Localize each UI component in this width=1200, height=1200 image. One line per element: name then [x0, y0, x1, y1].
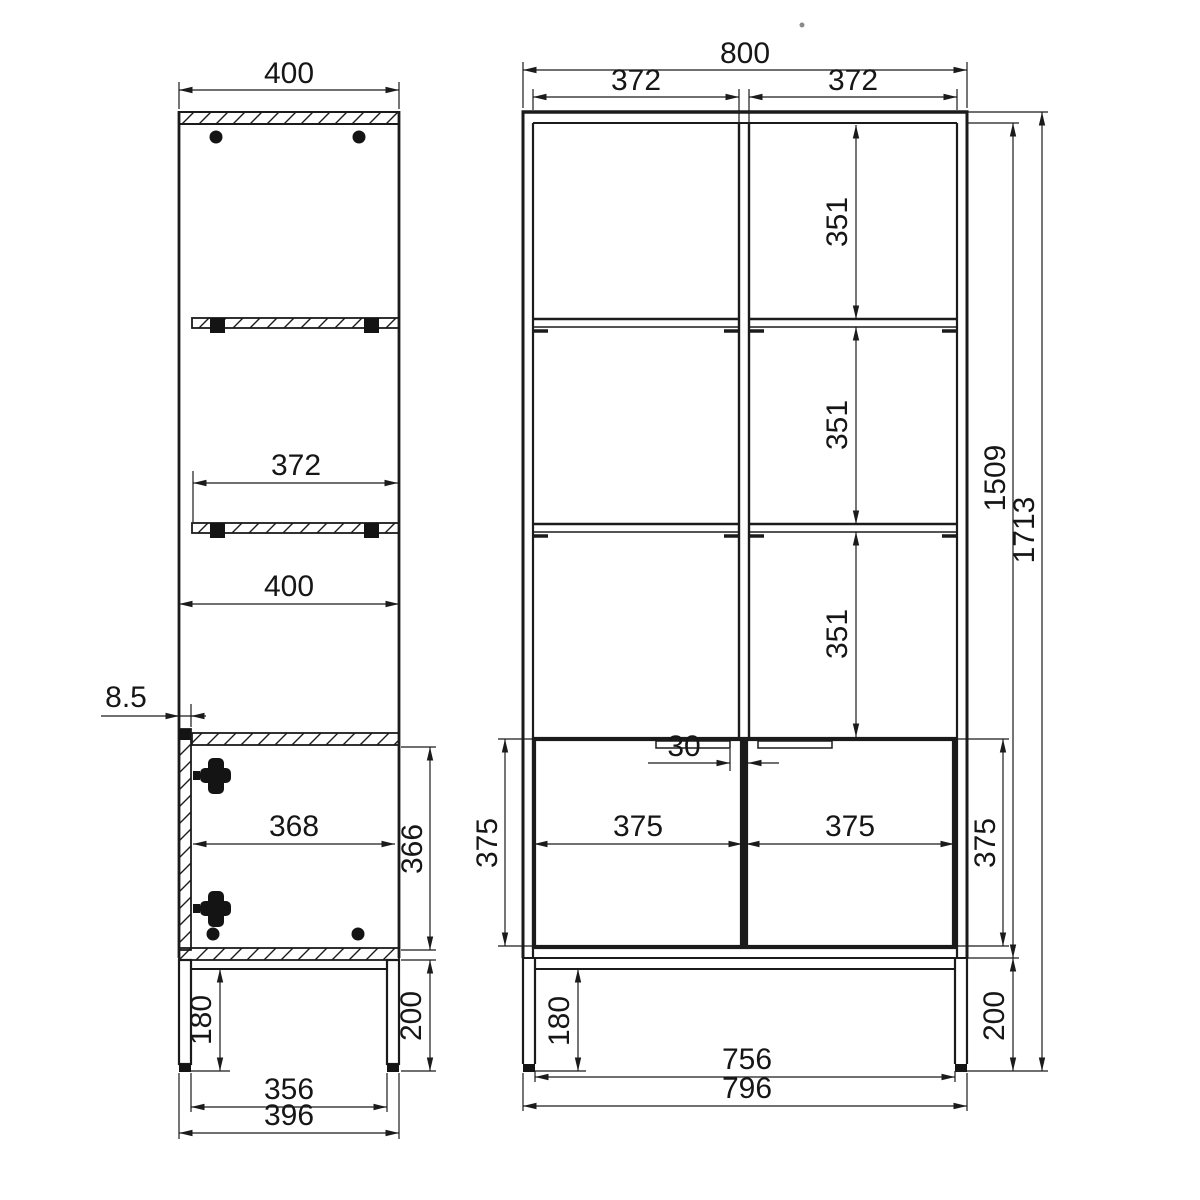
- dim-front-underframe-clearance: 180: [543, 996, 576, 1046]
- dim-bay-height-top: 351: [821, 197, 854, 247]
- dowel-hole-icon: [207, 928, 220, 941]
- shelf-clip-icon: [210, 523, 225, 538]
- door-top-edge: [179, 729, 191, 740]
- dim-right-door-width: 375: [825, 810, 875, 843]
- hinge-icon: [193, 891, 231, 927]
- dim-side-leg-height: 200: [395, 991, 428, 1041]
- side-bottom-section-top-panel: [192, 733, 399, 745]
- dim-total-width: 800: [720, 37, 770, 70]
- leg-foot: [523, 1064, 535, 1072]
- dim-side-leg-span-outer: 396: [264, 1099, 314, 1132]
- dim-right-door-height: 375: [969, 818, 1002, 868]
- front-carcass: [522, 111, 969, 1072]
- side-door-section: [179, 729, 191, 950]
- side-top-panel: [179, 112, 399, 124]
- dim-side-underframe-clearance: 180: [185, 995, 218, 1045]
- dim-left-door-width: 375: [613, 810, 663, 843]
- hinge-icon: [193, 758, 231, 794]
- center-divider: [739, 123, 749, 739]
- right-door: [746, 739, 954, 947]
- leg-foot: [387, 1064, 399, 1072]
- front-shelf: [749, 319, 957, 331]
- dim-side-interior-depth: 400: [264, 570, 314, 603]
- side-bottom-panel: [179, 948, 399, 960]
- shelf-clip-icon: [210, 318, 225, 333]
- dim-side-shelf-depth: 372: [271, 449, 321, 482]
- stray-speck: [800, 23, 805, 28]
- shelf-clip-icon: [364, 523, 379, 538]
- dim-base-width: 796: [722, 1072, 772, 1105]
- front-shelf: [533, 319, 739, 331]
- dim-right-bay-width: 372: [828, 64, 878, 97]
- left-door: [534, 739, 742, 947]
- technical-drawing-page: 400 372 400 8.5 368 366 180 200 356 396: [0, 0, 1200, 1200]
- cabinet-dimension-drawing: 400 372 400 8.5 368 366 180 200 356 396: [0, 0, 1200, 1200]
- dim-door-opening-height: 366: [396, 824, 429, 874]
- dowel-hole-icon: [353, 131, 366, 144]
- dim-door-interior-depth: 368: [269, 810, 319, 843]
- front-view-drawing: 800 372 372 351 351 351 30 375 375 375 3…: [471, 37, 1048, 1111]
- dim-handle-gap: 30: [667, 730, 700, 763]
- shelf-clip-icon: [364, 318, 379, 333]
- dowel-hole-icon: [352, 928, 365, 941]
- dowel-hole-icon: [210, 131, 223, 144]
- side-dimensions: [101, 82, 436, 1139]
- dim-left-bay-width: 372: [611, 64, 661, 97]
- dim-front-leg-height: 200: [978, 991, 1011, 1041]
- side-view-drawing: 400 372 400 8.5 368 366 180 200 356 396: [101, 57, 436, 1139]
- front-shelf: [749, 524, 957, 536]
- side-shelf-lower: [192, 523, 399, 538]
- dim-side-depth: 400: [264, 57, 314, 90]
- dim-bay-height-middle: 351: [821, 400, 854, 450]
- front-shelf: [533, 524, 739, 536]
- side-shelf-upper: [192, 318, 399, 333]
- dim-door-thickness: 8.5: [105, 681, 147, 714]
- dim-bay-height-bottom: 351: [821, 609, 854, 659]
- dim-total-height: 1713: [1008, 497, 1041, 564]
- dim-left-door-height: 375: [471, 818, 504, 868]
- leg-foot: [179, 1064, 191, 1072]
